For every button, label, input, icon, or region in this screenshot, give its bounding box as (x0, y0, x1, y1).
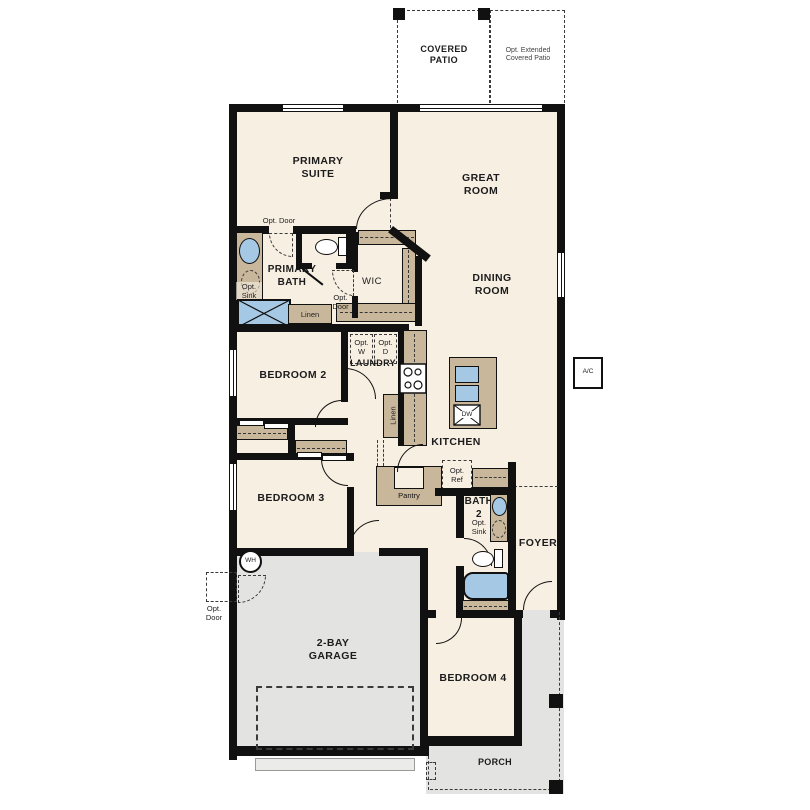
wall-wic-right (415, 256, 422, 326)
sliding-closet-door (264, 423, 289, 429)
window (283, 104, 343, 112)
wall-garage-right (420, 552, 428, 752)
foyer-label: FOYER (516, 537, 560, 550)
covered-patio-label: COVERED PATIO (406, 44, 482, 67)
laundry-label: LAUNDRY (346, 358, 400, 369)
stove (399, 363, 427, 394)
toilet-bowl (472, 551, 494, 567)
porch-area-front (426, 744, 564, 794)
wall-bed4-bottom (420, 736, 522, 746)
wall (296, 228, 302, 268)
window (557, 253, 565, 297)
counter-line (475, 477, 506, 479)
extended-patio-label: Opt. Extended Covered Patio (495, 47, 561, 64)
opt-door-label: Opt. Door (200, 604, 228, 622)
opt-washer-label: Opt. W (352, 338, 371, 356)
great-room-label: GREAT ROOM (448, 172, 514, 198)
wall-bath2-foyer (508, 462, 516, 612)
wall (336, 263, 352, 269)
opening-dashed (383, 440, 385, 466)
window (229, 350, 237, 396)
wall-bed4-top (460, 610, 522, 618)
porch-post (549, 780, 563, 794)
opt-sink (492, 520, 506, 538)
wall-bed4-right (514, 610, 522, 746)
wall-bed3-right (347, 453, 354, 461)
dishwasher-label: DW (458, 411, 476, 418)
wall (229, 324, 409, 332)
porch-edge-dashed (430, 789, 561, 791)
wic-shelf (402, 248, 416, 310)
bedroom2-label: BEDROOM 2 (253, 369, 333, 382)
patio-post (393, 8, 405, 20)
ac-label: A/C (574, 368, 602, 375)
opt-sink-label: Opt. Sink (236, 282, 262, 300)
porch-post (549, 694, 563, 708)
toilet-bowl (315, 239, 338, 255)
wall (288, 425, 295, 455)
opening-dashed (377, 440, 379, 466)
closet-rod (408, 250, 409, 308)
toilet-tank (338, 237, 347, 256)
opt-ref-label: Opt. Ref (445, 466, 469, 484)
wall-suite-great (390, 104, 398, 198)
closet-rod (464, 606, 507, 607)
water-heater-label: WH (240, 557, 261, 564)
closet-rod (238, 433, 286, 434)
bathtub (463, 572, 509, 600)
garage-label: 2-BAY GARAGE (293, 637, 373, 663)
porch-label: PORCH (466, 757, 524, 768)
window (229, 464, 237, 510)
primary-sink (239, 238, 260, 264)
wic-label: WIC (354, 276, 390, 288)
driveway-strip (255, 758, 415, 771)
sliding-door (420, 104, 542, 112)
wall-foyer-bottom (550, 610, 565, 618)
linen-label: Linen (389, 396, 398, 436)
wall (352, 232, 358, 272)
dining-room-label: DINING ROOM (460, 272, 524, 298)
opt-door-box (206, 572, 237, 602)
primary-suite-label: PRIMARY SUITE (278, 155, 358, 181)
island-sink (455, 366, 479, 383)
porch-post-optional (426, 762, 436, 780)
sliding-closet-door (297, 452, 322, 458)
opt-dryer-label: Opt. D (376, 338, 395, 356)
bedroom4-label: BEDROOM 4 (432, 672, 514, 685)
closet-rod (340, 312, 412, 313)
opening-dashed (514, 486, 558, 488)
pantry-label: Pantry (381, 491, 437, 500)
bath2-sink (492, 497, 507, 516)
opt-door-label: Opt. Door (260, 216, 298, 225)
opt-sink-label: Opt. Sink (466, 518, 492, 536)
island-sink (455, 385, 479, 402)
bedroom3-label: BEDROOM 3 (251, 492, 331, 505)
closet-rod (297, 448, 345, 449)
patio-post (478, 8, 490, 20)
toilet-tank (494, 549, 503, 568)
wall-garage-top (379, 548, 428, 556)
kitchen-label: KITCHEN (418, 436, 494, 449)
wall-bed4-top (420, 610, 436, 618)
linen-label: Linen (290, 310, 330, 319)
garage-door (256, 686, 414, 750)
sliding-closet-door (239, 420, 264, 426)
floor-plan: COVERED PATIO Opt. Extended Covered Pati… (0, 0, 810, 810)
